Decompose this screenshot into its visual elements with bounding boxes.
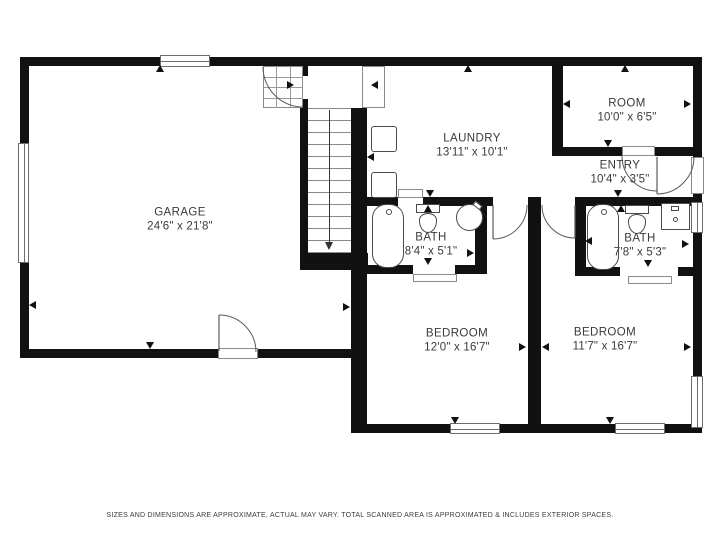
measure-tick — [426, 190, 434, 197]
room-label-laundry: LAUNDRY13'11" x 10'1" — [436, 133, 507, 160]
room-dimensions: 24'6" x 21'8" — [147, 220, 213, 234]
room-name: BEDROOM — [573, 327, 638, 341]
measure-tick — [684, 100, 691, 108]
room-label-entry: ENTRY10'4" x 3'5" — [590, 160, 649, 187]
measure-tick — [156, 65, 164, 72]
measure-tick — [29, 301, 36, 309]
garage-winder-door-swing — [263, 67, 303, 107]
room-dimensions: 11'7" x 16'7" — [573, 340, 638, 354]
measure-tick — [563, 100, 570, 108]
measure-tick — [585, 237, 592, 245]
bedroom-1-door-swing — [493, 205, 527, 239]
measure-tick — [542, 343, 549, 351]
measure-tick — [424, 205, 432, 212]
measure-tick — [467, 249, 474, 257]
measure-tick — [367, 153, 374, 161]
measure-tick — [371, 81, 378, 89]
room-dimensions: 12'0" x 16'7" — [424, 341, 490, 355]
room-label-bath-1: BATH8'4" x 5'1" — [405, 232, 457, 259]
measure-tick — [621, 65, 629, 72]
measure-tick — [614, 190, 622, 197]
room-dimensions: 8'4" x 5'1" — [405, 245, 457, 259]
measure-tick — [606, 417, 614, 424]
room-name: GARAGE — [147, 207, 213, 221]
measure-tick — [464, 65, 472, 72]
room-dimensions: 10'4" x 3'5" — [590, 173, 649, 187]
room-label-bedroom-2: BEDROOM11'7" x 16'7" — [573, 327, 638, 354]
measure-tick — [424, 258, 432, 265]
garage-side-door-swing — [219, 315, 256, 352]
room-label-bath-2: BATH7'8" x 5'3" — [614, 233, 666, 260]
door-swing-arcs — [0, 0, 720, 540]
room-name: BATH — [614, 233, 666, 247]
measure-tick — [519, 343, 526, 351]
floor-plan-page: GARAGE24'6" x 21'8"LAUNDRY13'11" x 10'1"… — [0, 0, 720, 540]
measure-tick — [146, 342, 154, 349]
measure-tick — [644, 260, 652, 267]
room-label-bedroom-1: BEDROOM12'0" x 16'7" — [424, 328, 490, 355]
room-name: LAUNDRY — [436, 133, 507, 147]
measure-tick — [604, 140, 612, 147]
bedroom-2-door-swing — [542, 205, 575, 238]
measure-tick — [343, 303, 350, 311]
measure-tick — [684, 343, 691, 351]
measure-tick — [287, 81, 294, 89]
front-door-swing — [657, 157, 694, 194]
room-dimensions: 7'8" x 5'3" — [614, 246, 666, 260]
measure-tick — [682, 240, 689, 248]
floor-plan: GARAGE24'6" x 21'8"LAUNDRY13'11" x 10'1"… — [0, 0, 720, 540]
room-label-garage: GARAGE24'6" x 21'8" — [147, 207, 213, 234]
room-name: ENTRY — [590, 160, 649, 174]
room-label-room: ROOM10'0" x 6'5" — [597, 98, 656, 125]
measure-tick — [451, 417, 459, 424]
room-dimensions: 13'11" x 10'1" — [436, 146, 507, 160]
room-name: ROOM — [597, 98, 656, 112]
room-name: BATH — [405, 232, 457, 246]
room-dimensions: 10'0" x 6'5" — [597, 111, 656, 125]
room-name: BEDROOM — [424, 328, 490, 342]
measure-tick — [617, 205, 625, 212]
